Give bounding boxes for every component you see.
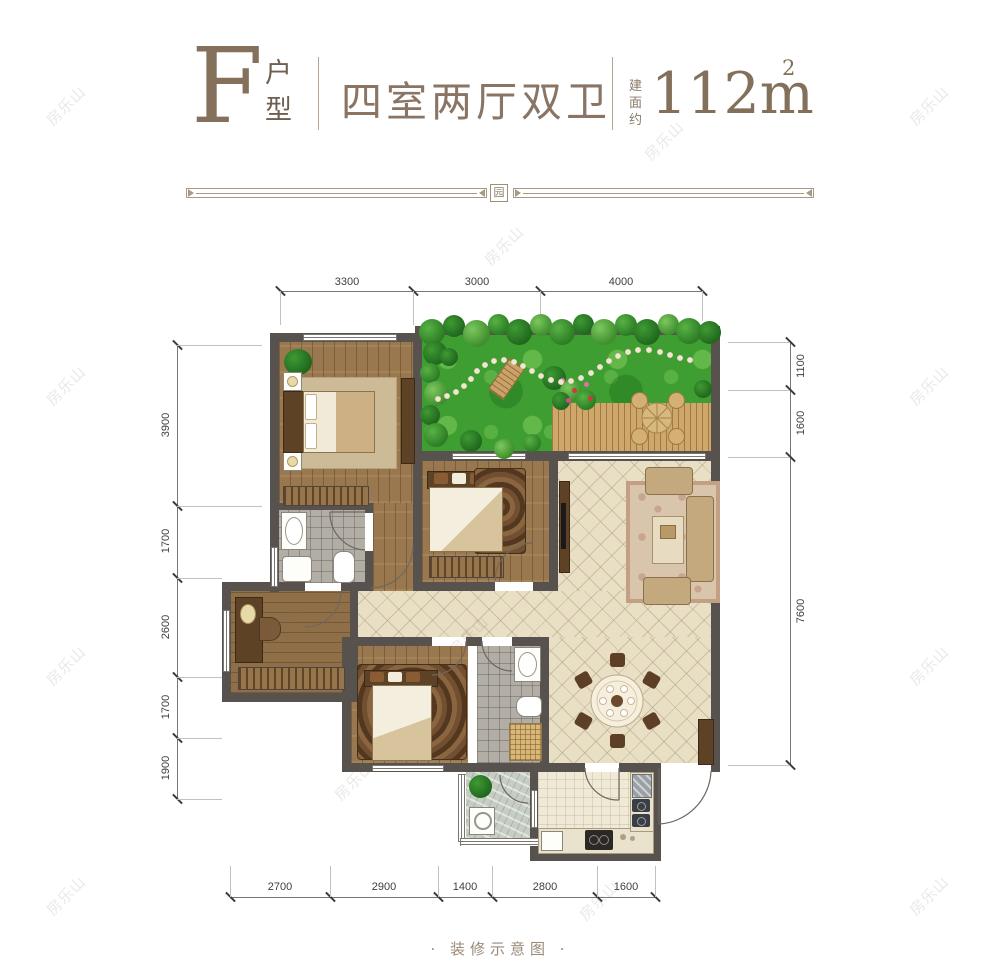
dining-chair-icon — [610, 653, 625, 667]
wall — [342, 637, 351, 772]
kitchen-item-icon — [630, 836, 635, 841]
bush-icon — [634, 319, 660, 345]
watermark: 房乐山 — [575, 876, 624, 925]
sideboard-icon — [698, 719, 714, 765]
sink-icon — [632, 774, 652, 798]
header-divider-1 — [318, 57, 319, 130]
flower-icon — [588, 396, 593, 401]
wall — [222, 693, 359, 702]
dim-ext — [177, 345, 262, 346]
bush-icon — [443, 315, 465, 337]
watermark: 房乐山 — [42, 361, 91, 410]
wall — [413, 451, 422, 591]
corridor-floor — [373, 503, 413, 591]
watermark: 房乐山 — [905, 871, 954, 920]
armchair-icon — [643, 577, 691, 605]
nightstand-icon — [283, 452, 302, 471]
bush-icon — [506, 319, 532, 345]
bed-icon — [429, 487, 503, 552]
page-title: 四室两厅双卫 — [341, 68, 611, 128]
cutting-board-icon — [541, 831, 563, 851]
deck-chair-icon — [668, 428, 685, 445]
closet-icon — [283, 486, 369, 506]
plant-icon — [469, 775, 492, 798]
dim-ext — [438, 866, 439, 897]
ornament-badge: 园 — [490, 184, 508, 202]
pillow-icon — [305, 423, 317, 449]
unit-type-char-1: 户 — [265, 60, 292, 87]
dim-ext — [728, 390, 790, 391]
dim-ext — [177, 738, 222, 739]
unit-letter: F — [191, 34, 263, 138]
window — [460, 838, 540, 846]
dim-bottom-4: 2800 — [533, 881, 557, 893]
area-superscript: 2 — [782, 58, 795, 79]
dim-ext — [177, 677, 222, 678]
dim-ext — [177, 799, 222, 800]
area-label-char-3: 约 — [629, 114, 642, 127]
flower-icon — [572, 388, 577, 393]
ornament-bar-right — [513, 188, 814, 198]
watermark: 房乐山 — [42, 871, 91, 920]
window — [531, 790, 537, 828]
area-label-char-1: 建 — [629, 80, 642, 93]
garden-deck — [552, 403, 711, 452]
dim-ext — [330, 866, 331, 897]
deck-chair-icon — [668, 392, 685, 409]
burner-icon — [589, 835, 599, 845]
dim-line-top — [280, 291, 702, 292]
window — [223, 610, 230, 672]
palm-icon — [460, 430, 482, 452]
dim-ext — [492, 866, 493, 897]
window — [568, 453, 706, 459]
pillow-icon — [434, 473, 448, 484]
wall — [342, 637, 432, 646]
watermark: 房乐山 — [42, 641, 91, 690]
wall — [413, 582, 495, 591]
watermark: 房乐山 — [905, 641, 954, 690]
dim-bottom-3: 1400 — [453, 881, 477, 893]
toilet-icon — [516, 696, 542, 717]
wardrobe-icon — [429, 556, 504, 578]
burner-icon — [599, 835, 609, 845]
dim-ext — [177, 578, 222, 579]
nightstand-icon — [283, 372, 302, 391]
area-label-char-2: 面 — [629, 97, 642, 110]
sink-counter — [514, 647, 541, 682]
dim-right-1: 1100 — [795, 354, 807, 378]
dim-ext — [728, 342, 790, 343]
dim-top-2: 3000 — [465, 276, 489, 288]
pillow-icon — [388, 672, 402, 682]
dim-line-right — [790, 342, 791, 765]
shower-mat-icon — [509, 723, 542, 761]
tv-icon — [561, 503, 566, 549]
pillow-icon — [305, 394, 317, 420]
dim-left-4: 1700 — [160, 695, 172, 719]
dining-chair-icon — [610, 734, 625, 748]
watermark: 房乐山 — [42, 81, 91, 130]
bed-icon — [372, 685, 432, 761]
dim-ext — [728, 765, 790, 766]
toilet-icon — [333, 551, 355, 583]
bush-icon — [576, 390, 596, 410]
bush-icon — [694, 380, 712, 398]
dim-right-2: 1600 — [795, 411, 807, 435]
bush-icon — [463, 320, 490, 347]
unit-type-char-2: 型 — [265, 97, 292, 124]
wall — [549, 763, 585, 772]
bush-icon — [698, 321, 721, 344]
window — [452, 453, 526, 459]
bush-icon — [523, 434, 541, 452]
ornament-arrow-icon — [188, 189, 194, 197]
wall — [341, 582, 373, 591]
bush-icon — [549, 319, 575, 345]
wall — [549, 451, 558, 591]
sofa-icon — [686, 496, 714, 582]
flower-icon — [584, 382, 589, 387]
appliance-icon — [632, 799, 650, 812]
dim-bottom-2: 2900 — [372, 881, 396, 893]
cabinet-icon — [282, 556, 312, 582]
window — [271, 547, 278, 587]
pillow-icon — [406, 672, 420, 682]
ornament-bar-left — [186, 188, 487, 198]
watermark: 房乐山 — [480, 221, 529, 270]
wall — [222, 582, 305, 591]
deck-chair-icon — [631, 428, 648, 445]
dining-floor — [549, 637, 711, 763]
window — [303, 334, 397, 341]
ornament-arrow-icon — [479, 189, 485, 197]
coffee-table-icon — [652, 516, 684, 564]
dim-left-2: 1700 — [160, 529, 172, 553]
dim-left-5: 1900 — [160, 756, 172, 780]
dim-line-left — [177, 345, 178, 800]
sink-counter — [281, 512, 307, 550]
lamp-icon — [240, 604, 256, 624]
washer-door-icon — [474, 812, 492, 830]
sink-icon — [285, 517, 303, 545]
appliance-icon — [632, 814, 650, 827]
kitchen-item-icon — [620, 834, 626, 840]
knob-icon — [637, 817, 646, 826]
sink-icon — [518, 652, 537, 677]
bed-headboard — [283, 391, 305, 453]
deck-chair-icon — [631, 392, 648, 409]
dim-bottom-1: 2700 — [268, 881, 292, 893]
footer-caption: · 装修示意图 · — [430, 938, 569, 959]
ornament-arrow-icon — [515, 189, 521, 197]
dim-left-3: 2600 — [160, 615, 172, 639]
dim-ext — [702, 291, 703, 321]
dim-ext — [655, 866, 656, 897]
bush-icon — [440, 348, 458, 366]
tray-icon — [660, 525, 676, 539]
bush-icon — [424, 423, 448, 447]
bush-icon — [424, 381, 449, 406]
lamp-icon — [287, 376, 298, 387]
dim-ext — [413, 291, 414, 325]
dim-ext — [728, 457, 790, 458]
cooktop-icon — [585, 830, 613, 850]
flower-icon — [560, 378, 565, 383]
lamp-icon — [287, 456, 298, 467]
dim-left-1: 3900 — [160, 413, 172, 437]
wall — [533, 582, 558, 591]
pillow-icon — [452, 473, 466, 484]
floorplan-page: F 户 型 四室两厅双卫 建 面 约 112m 2 园 3300 3000 40… — [0, 0, 1000, 980]
dim-ext — [230, 866, 231, 897]
washer-icon — [469, 807, 495, 835]
ornament-arrow-icon — [806, 189, 812, 197]
flower-icon — [566, 398, 571, 403]
window — [458, 774, 466, 842]
dim-ext — [280, 291, 281, 325]
bush-icon — [591, 319, 617, 345]
wardrobe-icon — [401, 378, 415, 464]
window — [372, 765, 444, 771]
watermark: 房乐山 — [905, 361, 954, 410]
dim-top-1: 3300 — [335, 276, 359, 288]
header-divider-2 — [612, 57, 613, 130]
palm-icon — [494, 439, 514, 459]
bookshelf-icon — [238, 667, 345, 690]
dim-top-3: 4000 — [609, 276, 633, 288]
knob-icon — [637, 802, 646, 811]
watermark: 房乐山 — [905, 81, 954, 130]
dim-ext — [177, 506, 262, 507]
armchair-icon — [645, 467, 693, 495]
pillow-icon — [370, 672, 384, 682]
bush-icon — [420, 363, 440, 383]
bush-icon — [420, 405, 440, 425]
dim-right-3: 7600 — [795, 599, 807, 623]
